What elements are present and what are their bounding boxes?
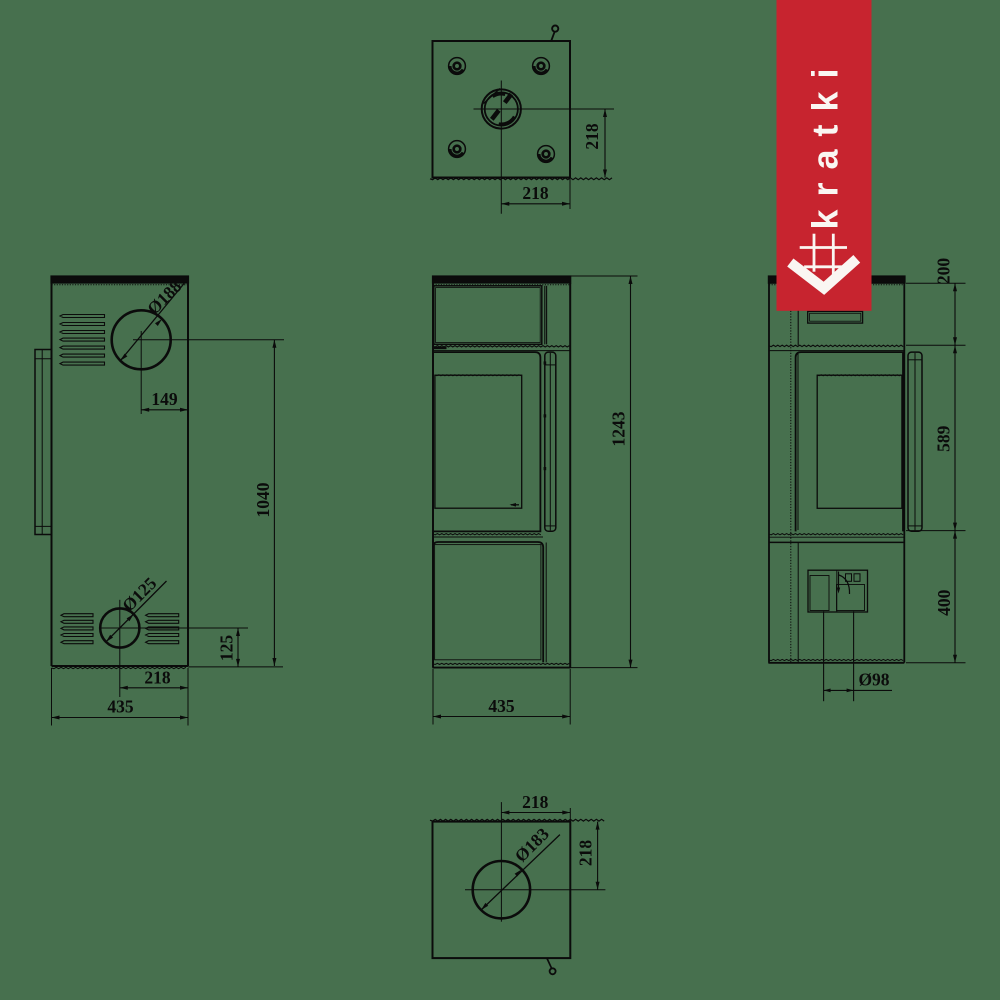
svg-text:1243: 1243 [609,411,629,446]
svg-text:Ø98: Ø98 [858,670,889,690]
svg-text:218: 218 [582,123,602,150]
svg-text:435: 435 [107,696,134,716]
svg-text:200: 200 [933,258,953,285]
svg-text:435: 435 [488,696,515,716]
svg-text:218: 218 [522,792,549,812]
svg-text:149: 149 [151,389,178,409]
svg-text:218: 218 [522,183,549,203]
svg-text:1040: 1040 [253,482,273,517]
svg-text:589: 589 [933,425,953,452]
svg-text:218: 218 [144,667,171,687]
svg-text:218: 218 [576,840,596,867]
svg-text:400: 400 [934,589,954,616]
svg-text:kratki: kratki [805,55,846,229]
svg-text:125: 125 [217,635,237,662]
